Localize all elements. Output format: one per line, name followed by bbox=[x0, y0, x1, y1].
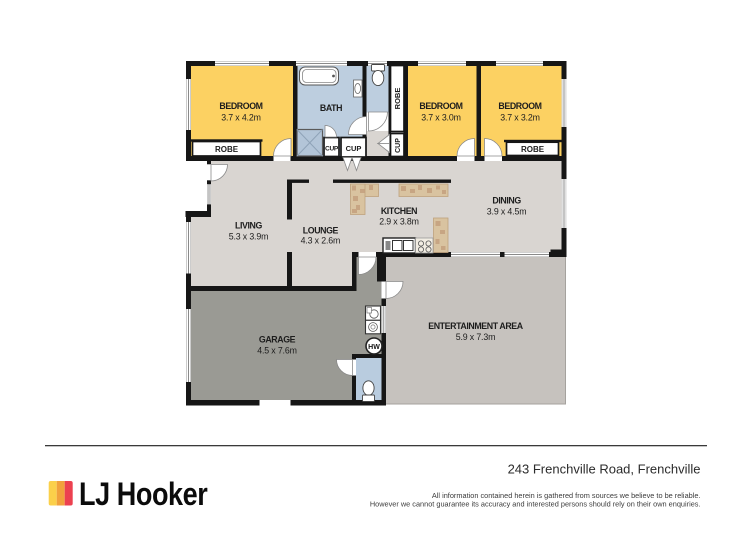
svg-text:BATH: BATH bbox=[320, 103, 342, 113]
svg-text:LOUNGE: LOUNGE bbox=[303, 226, 339, 236]
svg-text:HW: HW bbox=[368, 344, 380, 351]
svg-text:4.5 x 7.6m: 4.5 x 7.6m bbox=[257, 346, 297, 356]
svg-text:DINING: DINING bbox=[492, 195, 521, 205]
svg-text:5.3 x 3.9m: 5.3 x 3.9m bbox=[229, 232, 269, 242]
svg-text:3.7 x 3.2m: 3.7 x 3.2m bbox=[500, 113, 540, 123]
svg-text:3.7 x 3.0m: 3.7 x 3.0m bbox=[421, 113, 461, 123]
svg-text:BEDROOM: BEDROOM bbox=[419, 101, 462, 111]
svg-text:CUP: CUP bbox=[325, 146, 339, 153]
svg-text:LJ Hooker: LJ Hooker bbox=[79, 477, 208, 513]
svg-text:However we cannot guarantee it: However we cannot guarantee its accuracy… bbox=[370, 500, 701, 509]
svg-text:ROBE: ROBE bbox=[393, 88, 402, 110]
svg-text:KITCHEN: KITCHEN bbox=[381, 206, 417, 216]
svg-text:CUP: CUP bbox=[346, 144, 362, 153]
svg-text:3.9 x 4.5m: 3.9 x 4.5m bbox=[487, 207, 527, 217]
svg-text:GARAGE: GARAGE bbox=[259, 335, 296, 345]
svg-text:BEDROOM: BEDROOM bbox=[498, 101, 541, 111]
svg-text:CUP: CUP bbox=[395, 138, 402, 153]
svg-text:ENTERTAINMENT AREA: ENTERTAINMENT AREA bbox=[428, 321, 523, 331]
svg-text:243 Frenchville Road, Frenchvi: 243 Frenchville Road, Frenchville bbox=[508, 462, 701, 477]
svg-text:5.9 x 7.3m: 5.9 x 7.3m bbox=[456, 332, 496, 342]
svg-text:LIVING: LIVING bbox=[235, 221, 262, 231]
svg-text:ROBE: ROBE bbox=[521, 145, 545, 154]
svg-text:4.3 x 2.6m: 4.3 x 2.6m bbox=[301, 236, 341, 246]
svg-text:ROBE: ROBE bbox=[215, 145, 239, 154]
svg-text:2.9 x 3.8m: 2.9 x 3.8m bbox=[379, 217, 419, 227]
svg-text:BEDROOM: BEDROOM bbox=[219, 101, 262, 111]
svg-text:3.7 x 4.2m: 3.7 x 4.2m bbox=[221, 113, 261, 123]
